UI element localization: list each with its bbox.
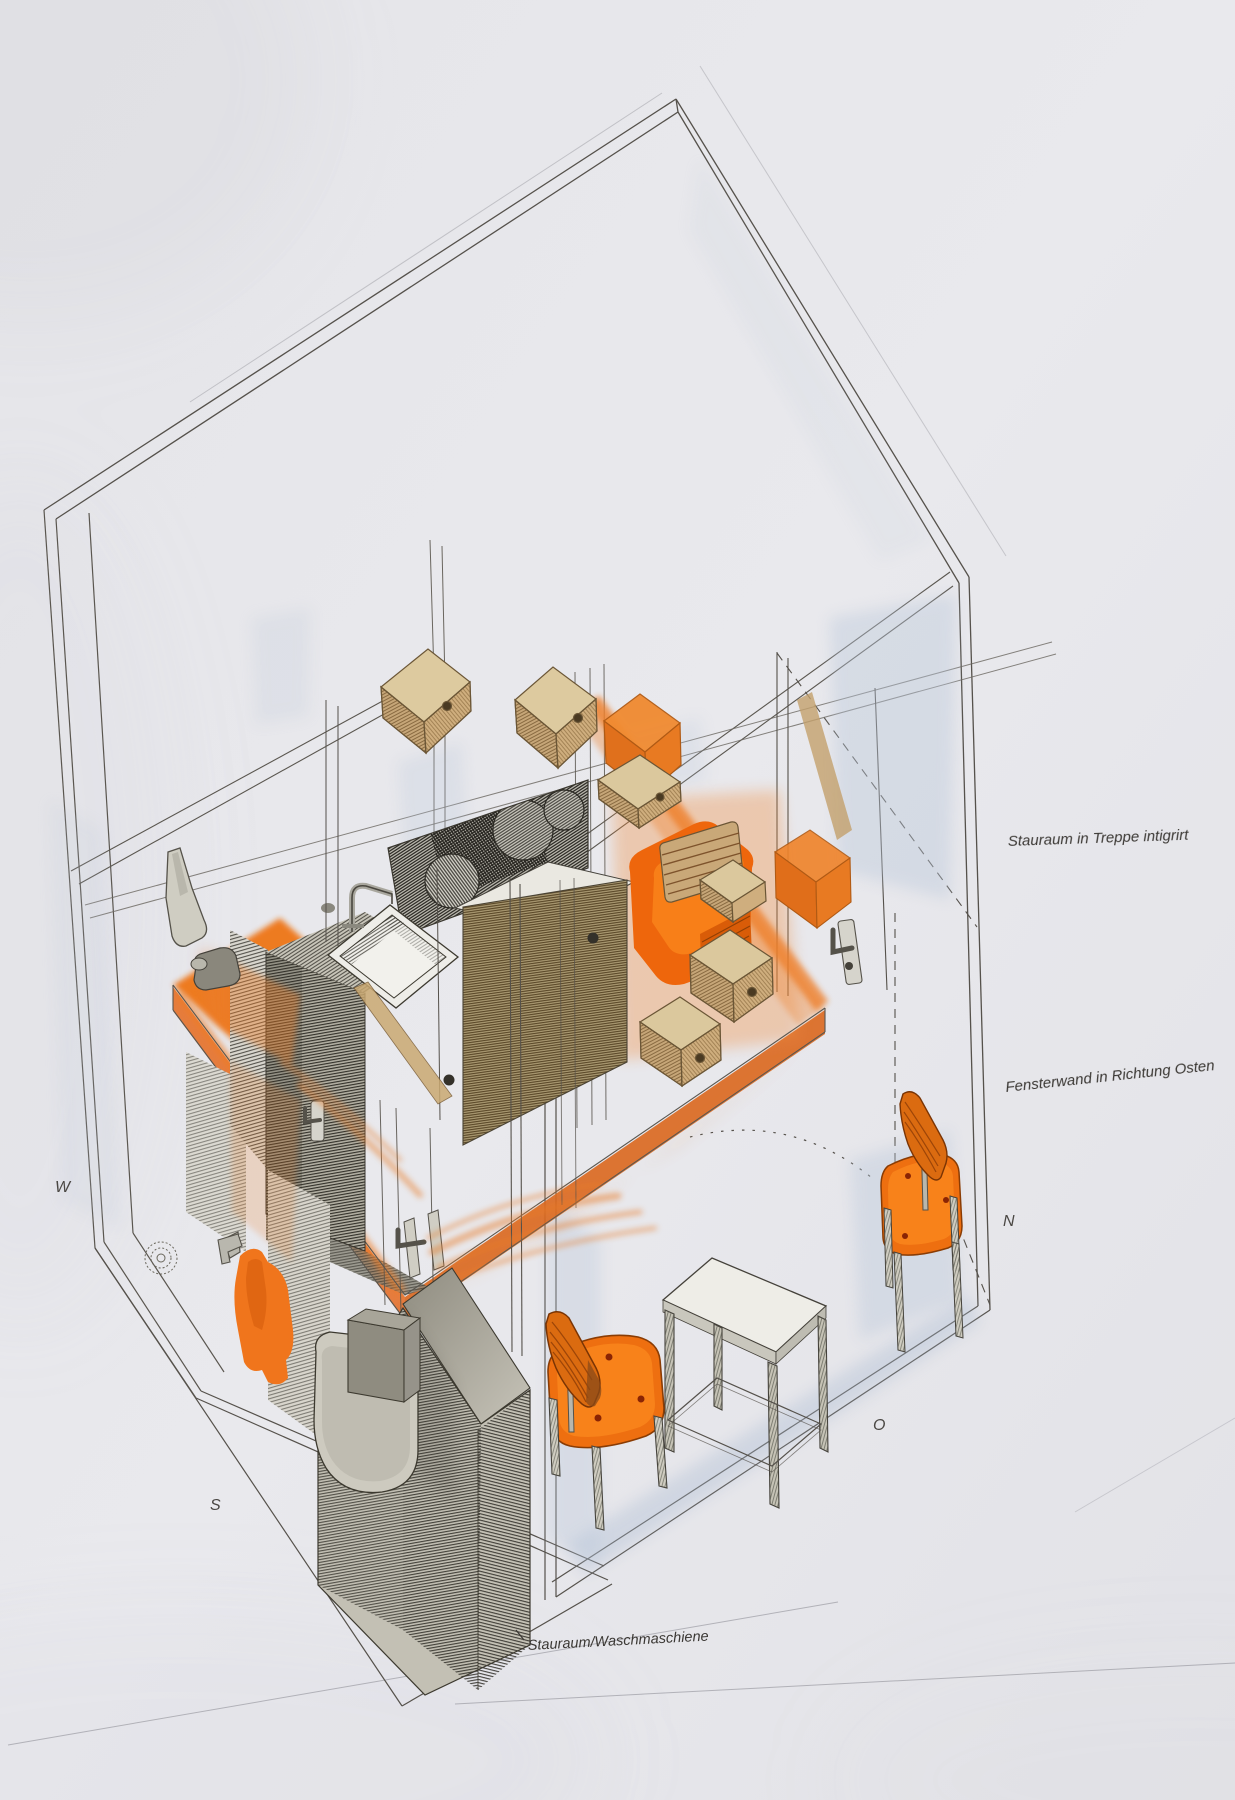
svg-text:O: O (873, 1417, 885, 1434)
svg-text:S: S (210, 1497, 221, 1514)
svg-text:N: N (1003, 1213, 1015, 1230)
svg-text:W: W (55, 1179, 72, 1196)
